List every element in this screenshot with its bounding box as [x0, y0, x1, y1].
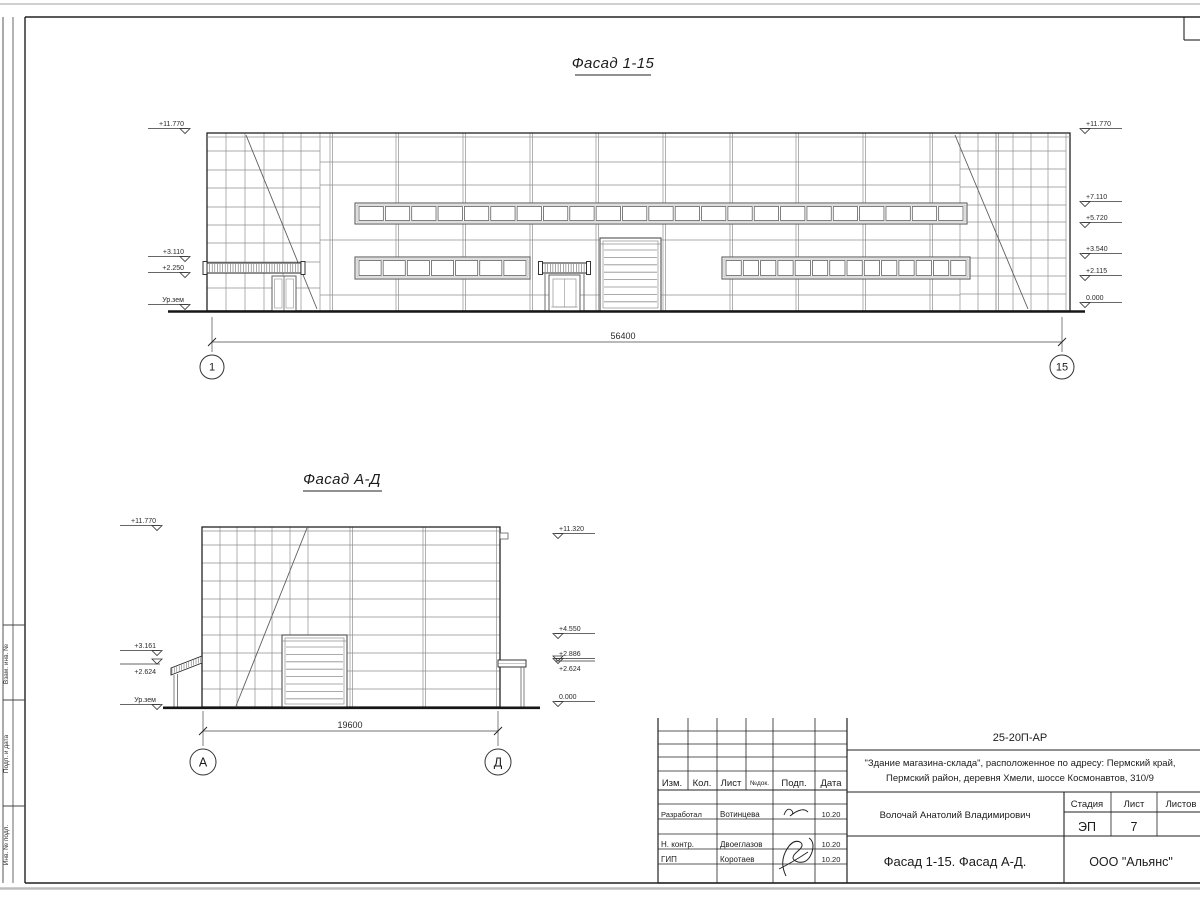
- name-developed: Вотинцева: [720, 810, 760, 819]
- elevation-mark: 0.000: [1086, 295, 1104, 302]
- project-name-line1: "Здание магазина-склада", расположенное …: [864, 758, 1175, 769]
- col-header-kol: Кол.: [693, 778, 712, 789]
- col-header-list: Лист: [721, 778, 742, 789]
- elevation-mark: +5.720: [1086, 215, 1108, 222]
- side-label-podp: Подп. и дата: [3, 734, 10, 773]
- elevation-mark: +7.110: [1086, 194, 1107, 201]
- side-label-vzam: Взам. инв. №: [3, 644, 10, 684]
- drawing-name: Фасад 1-15. Фасад А-Д.: [884, 854, 1027, 869]
- name-ncontrol: Двоеглазов: [720, 840, 763, 849]
- axis-bubble-15: 15: [1056, 362, 1068, 374]
- side-label-inv: Инв. № подл.: [3, 825, 10, 866]
- sheet-number: 7: [1131, 820, 1138, 834]
- role-gip: ГИП: [661, 855, 677, 864]
- elevation-mark: +4.550: [559, 626, 581, 633]
- date-ncontrol: 10.20: [822, 840, 841, 849]
- date-gip: 10.20: [822, 855, 841, 864]
- project-name-line2: Пермский район, деревня Хмели, шоссе Кос…: [886, 773, 1154, 784]
- date-developed: 10.20: [822, 810, 841, 819]
- col-header-ndok: №док.: [750, 780, 769, 787]
- elevation-mark: +2.624: [559, 666, 581, 673]
- elevation-mark: +2.624: [134, 669, 156, 676]
- sheets-label: Листов: [1166, 799, 1197, 810]
- author-name: Волочай Анатолий Владимирович: [880, 810, 1031, 821]
- name-gip: Коротаев: [720, 855, 755, 864]
- role-ncontrol: Н. контр.: [661, 840, 694, 849]
- stage-value: ЭП: [1078, 820, 1096, 834]
- title-block: 25-20П-АР "Здание магазина-склада", расп…: [661, 732, 1196, 869]
- elevation-mark: +11.770: [159, 121, 184, 128]
- side-column: Взам. инв. № Подп. и дата Инв. № подл.: [3, 644, 10, 865]
- elevation-mark: 0.000: [559, 694, 577, 701]
- facade2-drawing: Фасад А-Д 19600 А Д +11.770 +3.161 +2.62…: [131, 471, 584, 770]
- axis-bubble-1: 1: [209, 362, 215, 374]
- role-developed: Разработал: [661, 810, 702, 819]
- elevation-mark: +3.161: [134, 643, 156, 650]
- cad-drawing: Фасад 1-15 56400 1 15 +11.770 +3.110 +2.…: [0, 0, 1200, 900]
- sheet-label: Лист: [1124, 799, 1145, 810]
- elevation-mark: +2.250: [162, 265, 184, 272]
- axis-bubble-d: Д: [494, 756, 503, 770]
- elevation-mark: +3.540: [1086, 246, 1108, 253]
- elevation-mark: +11.770: [131, 518, 156, 525]
- drawing-sheet: Фасад 1-15 56400 1 15 +11.770 +3.110 +2.…: [0, 0, 1200, 900]
- facade2-dimension-label: 19600: [337, 720, 362, 730]
- elevation-mark: Ур.зем: [162, 297, 184, 304]
- elevation-mark: +2.115: [1086, 268, 1107, 275]
- stage-label: Стадия: [1071, 799, 1103, 810]
- drawing-geometry: [0, 4, 1200, 889]
- company-name: ООО "Альянс": [1089, 855, 1173, 869]
- axis-bubble-a: А: [199, 756, 208, 770]
- elevation-mark: +11.770: [1086, 121, 1111, 128]
- elevation-mark: +2.886: [559, 651, 581, 658]
- col-header-data: Дата: [820, 778, 842, 789]
- col-header-izm: Изм.: [662, 778, 682, 789]
- elevation-mark: +3.110: [163, 249, 184, 256]
- elevation-mark: +11.320: [559, 526, 584, 533]
- elevation-mark: Ур.зем: [134, 697, 156, 704]
- facade2-title: Фасад А-Д: [303, 471, 381, 488]
- doc-number: 25-20П-АР: [993, 732, 1047, 744]
- col-header-podp: Подп.: [781, 778, 806, 789]
- facade1-title: Фасад 1-15: [572, 55, 655, 72]
- facade1-dimension-label: 56400: [610, 331, 635, 341]
